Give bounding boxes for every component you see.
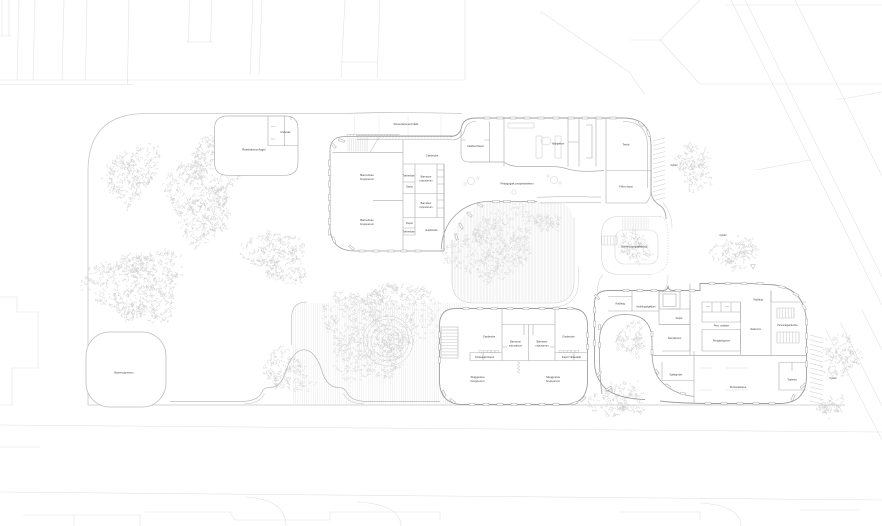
svg-text:Barnstuerm/pusterum: Barnstuerm/pusterum [419,202,432,209]
svg-text:Toaletter: Toaletter [787,379,797,382]
svg-text:Cykler: Cykler [829,376,836,380]
svg-text:Teknik: Teknik [622,144,630,147]
svg-text:Felles depot: Felles depot [619,186,633,189]
svg-text:Samtalerum: Samtalerum [668,337,681,340]
svg-text:Depot: Depot [406,185,413,188]
svg-text:Cykler: Cykler [719,233,726,237]
svg-text:Cykler: Cykler [670,163,677,167]
svg-text:Tørkeskab Depot: Tørkeskab Depot [475,356,494,359]
svg-text:Rengøringsrum: Rengøringsrum [713,340,730,343]
svg-text:Garderobe: Garderobe [425,228,438,232]
svg-text:Personalgarderobe: Personalgarderobe [777,324,798,327]
svg-text:Depot Tørkeskab: Depot Tørkeskab [562,356,582,359]
svg-text:Depot: Depot [406,222,413,225]
svg-text:Barnevognsparkering: Barnevognsparkering [621,245,647,249]
svg-text:Redskabsrum/lager: Redskabsrum/lager [242,148,265,152]
svg-text:Personalestue: Personalestue [730,385,747,389]
svg-text:BarnehuseGrupperom: BarnehuseGrupperom [360,173,375,181]
svg-text:Vindfang: Vindfang [615,303,625,306]
svg-text:Vindfang: Vindfang [753,299,763,302]
svg-text:Barnevognsrum: Barnevognsrum [115,371,135,375]
svg-text:Barnstuerm/pusterum: Barnstuerm/pusterum [509,341,522,348]
svg-text:Pers. toaletter: Pers. toaletter [714,325,730,328]
svg-text:SluggestueGrupperom: SluggestueGrupperom [470,375,485,383]
svg-text:Avdelingskjøkken: Avdelingskjøkken [636,306,656,309]
svg-text:Pedagogisk prosjektstreken: Pedagogisk prosjektstreken [500,182,534,186]
svg-text:Uteboder: Uteboder [280,131,290,134]
svg-text:Tørkeskab: Tørkeskab [403,174,415,177]
svg-text:Natkjøkken: Natkjøkken [552,143,565,146]
svg-text:Depot: Depot [676,317,683,320]
svg-text:Renovasjonsområde: Renovasjonsområde [394,122,419,126]
svg-text:SluggestueGrupperom: SluggestueGrupperom [546,375,561,383]
svg-text:Garderobe: Garderobe [562,335,575,339]
svg-text:Kaldbod Depot: Kaldbod Depot [467,145,484,148]
svg-text:Garderobe: Garderobe [483,335,496,339]
svg-text:Kjølegrédet: Kjølegrédet [670,374,683,377]
svg-text:Barnstuerm/pusterum: Barnstuerm/pusterum [419,176,432,183]
svg-text:Barnstuerm/pusterum: Barnstuerm/pusterum [535,341,548,348]
svg-text:BarnehuseGrupperom: BarnehuseGrupperom [360,218,375,226]
svg-text:Tørkeskab: Tørkeskab [403,231,415,234]
svg-text:Vaskerum: Vaskerum [750,328,761,331]
svg-text:Garderobe: Garderobe [426,154,439,158]
